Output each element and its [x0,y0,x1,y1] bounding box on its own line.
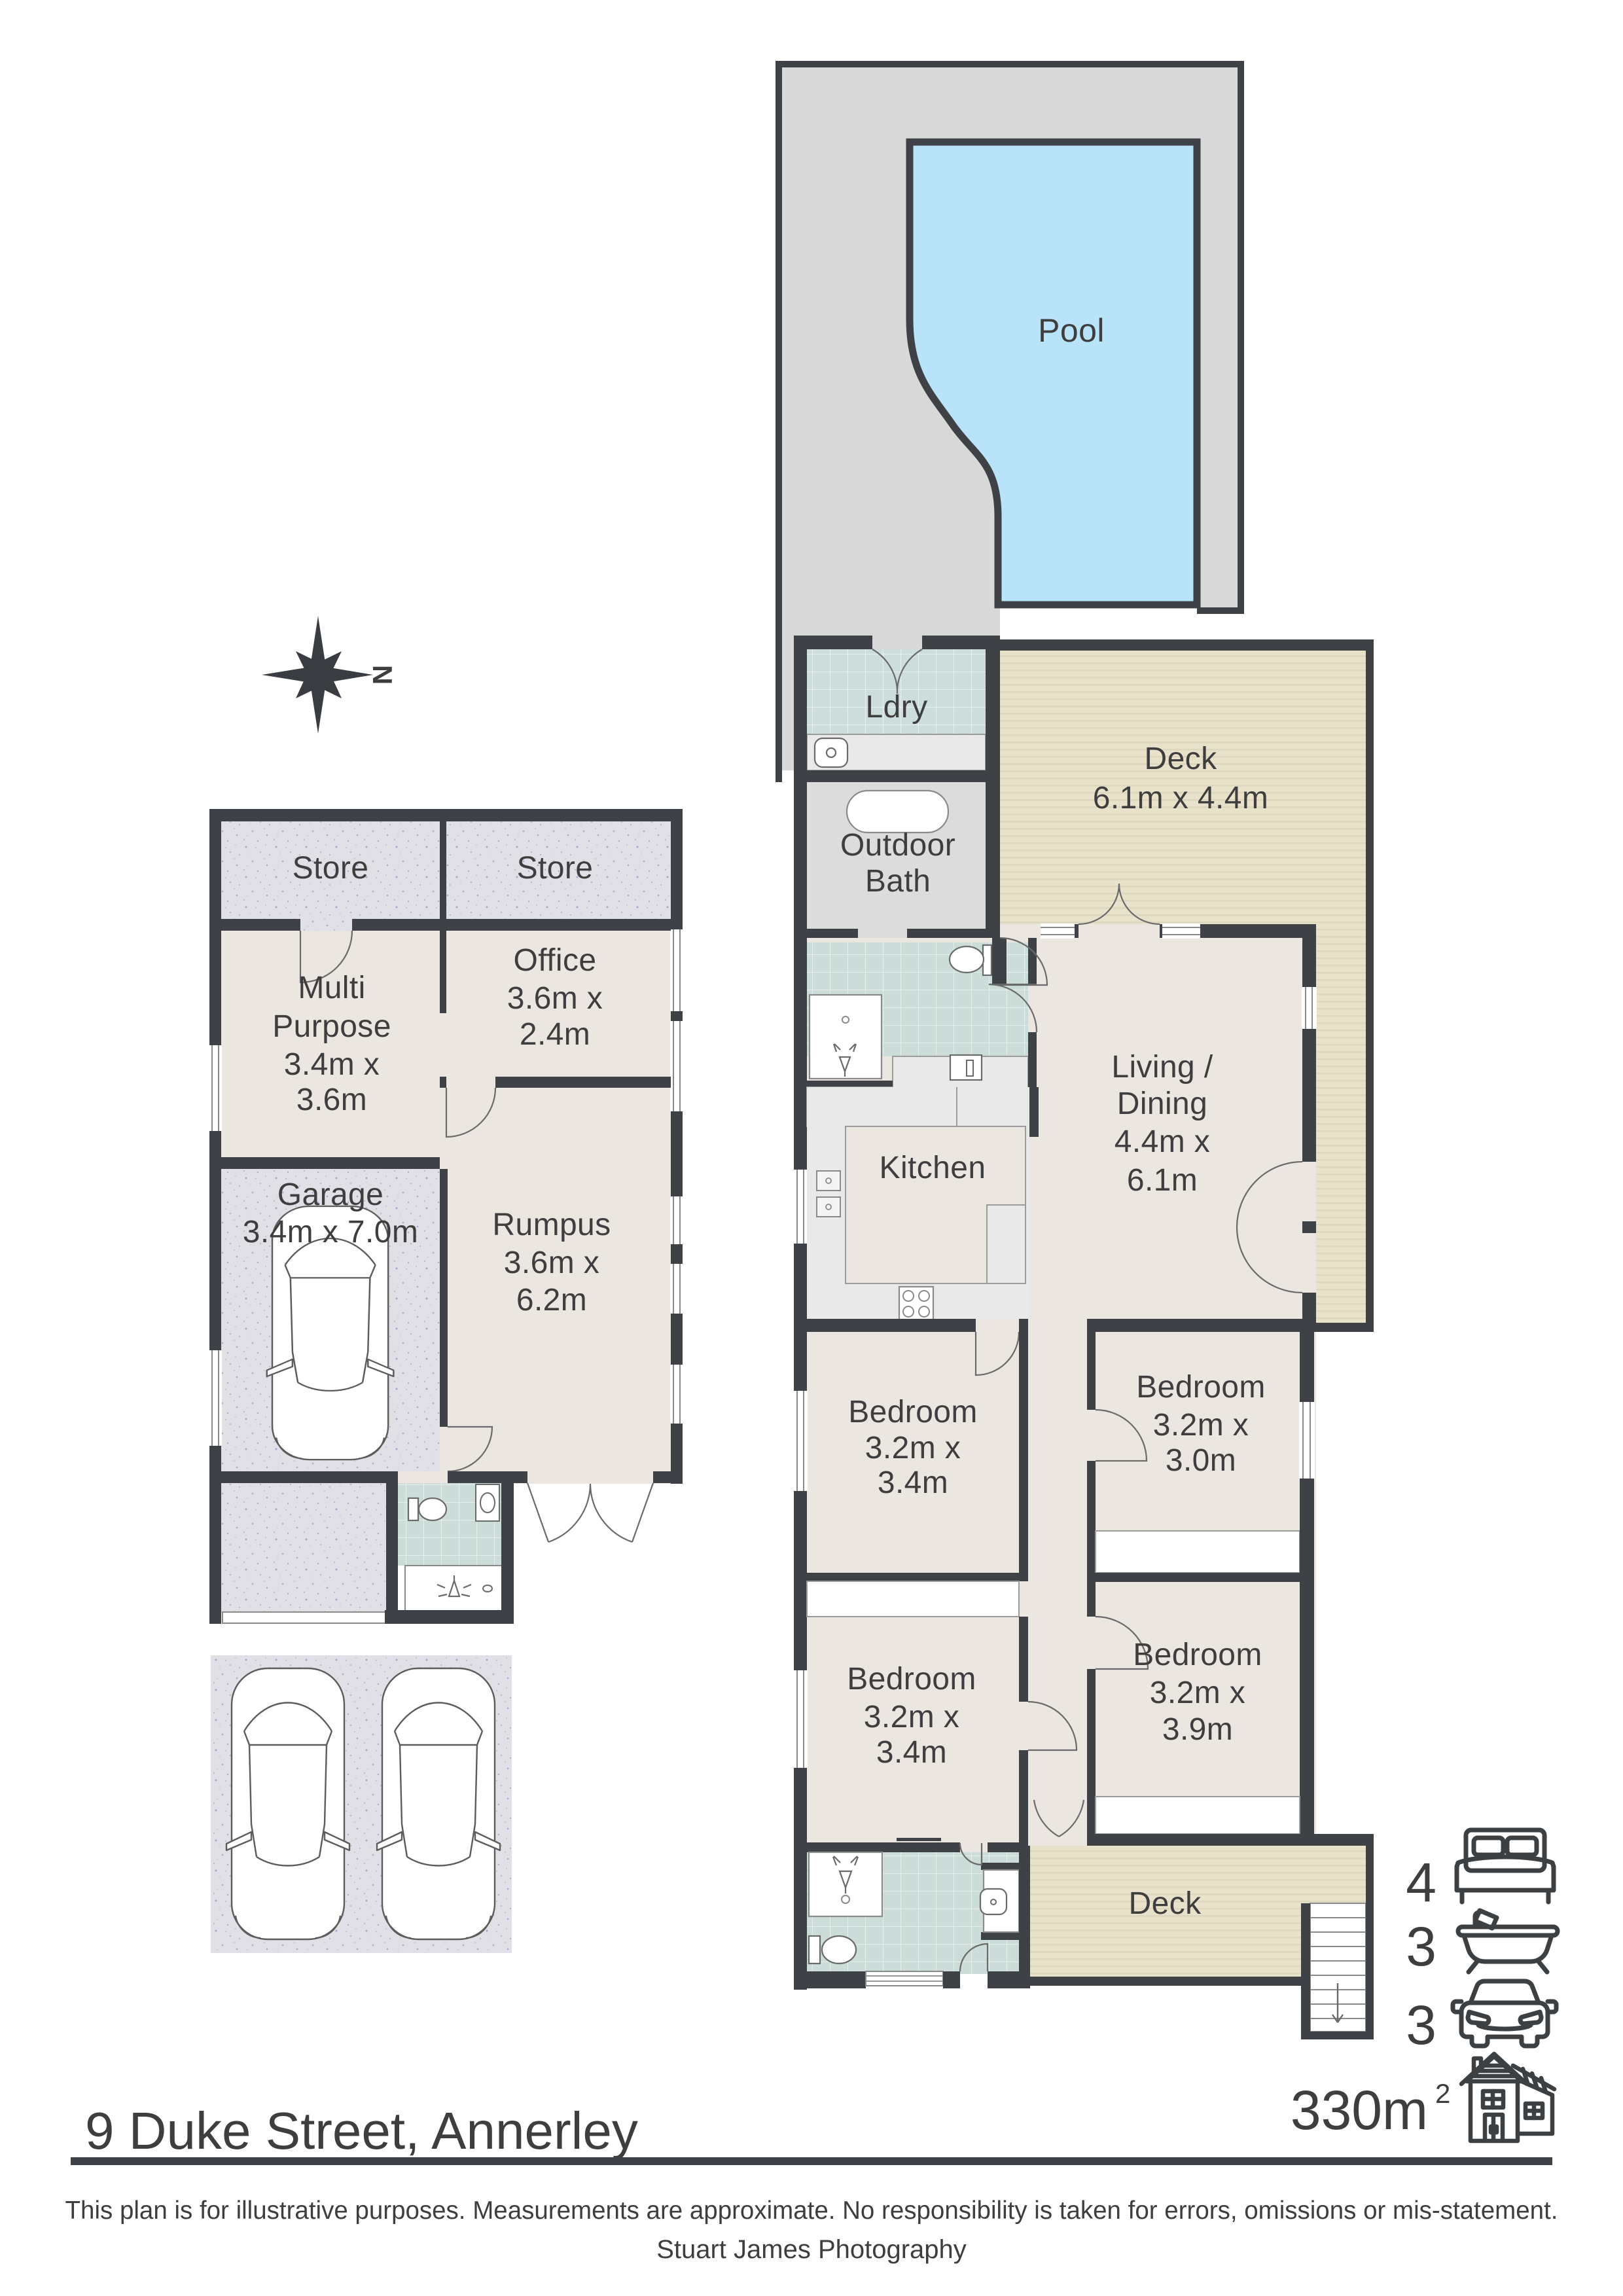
svg-text:6.2m: 6.2m [516,1283,587,1318]
svg-text:3.2m x: 3.2m x [1150,1676,1245,1710]
svg-text:3.6m: 3.6m [296,1083,367,1117]
svg-text:3.9m: 3.9m [1162,1712,1233,1747]
svg-text:Outdoor: Outdoor [840,828,955,863]
svg-text:Bath: Bath [865,864,931,899]
svg-text:Kitchen: Kitchen [880,1151,986,1185]
svg-text:This plan is for illustrative: This plan is for illustrative purposes. … [65,2197,1558,2225]
svg-text:3: 3 [1406,1994,1436,2056]
svg-text:Bedroom: Bedroom [848,1395,978,1429]
svg-text:Deck: Deck [1145,742,1218,776]
svg-text:Purpose: Purpose [272,1009,391,1044]
svg-text:Deck: Deck [1129,1886,1202,1921]
svg-text:9 Duke Street, Annerley: 9 Duke Street, Annerley [85,2102,638,2160]
svg-text:330m: 330m [1291,2079,1428,2141]
svg-text:Living /: Living / [1111,1050,1213,1085]
svg-text:Bedroom: Bedroom [1133,1638,1262,1672]
svg-text:4.4m x: 4.4m x [1115,1124,1210,1159]
svg-text:3.4m x: 3.4m x [284,1047,380,1082]
svg-text:Bedroom: Bedroom [847,1662,976,1696]
svg-text:3.6m x: 3.6m x [504,1246,599,1280]
svg-text:3.2m x: 3.2m x [1153,1408,1249,1443]
svg-text:3.0m: 3.0m [1166,1443,1236,1478]
svg-text:2: 2 [1435,2078,1450,2109]
svg-text:Store: Store [517,851,594,886]
svg-text:4: 4 [1406,1852,1436,1913]
svg-text:3.4m x 7.0m: 3.4m x 7.0m [243,1215,419,1249]
svg-text:N: N [367,665,398,685]
svg-text:Stuart James Photography: Stuart James Photography [656,2235,967,2264]
svg-text:2.4m: 2.4m [520,1017,590,1052]
svg-text:3.2m x: 3.2m x [864,1700,959,1734]
svg-text:Garage: Garage [277,1177,384,1212]
svg-text:3.2m x: 3.2m x [865,1431,961,1465]
svg-text:Multi: Multi [298,971,365,1005]
svg-text:Dining: Dining [1117,1086,1207,1121]
svg-text:3.4m: 3.4m [876,1735,947,1770]
svg-text:Ldry: Ldry [866,690,928,725]
svg-text:6.1m x 4.4m: 6.1m x 4.4m [1093,781,1269,816]
svg-text:3: 3 [1406,1916,1436,1977]
svg-text:3.4m: 3.4m [878,1465,948,1500]
svg-text:Rumpus: Rumpus [492,1208,611,1242]
svg-text:Pool: Pool [1038,312,1105,349]
svg-text:Bedroom: Bedroom [1136,1370,1266,1405]
svg-text:6.1m: 6.1m [1127,1163,1198,1198]
svg-text:3.6m x: 3.6m x [507,981,603,1016]
svg-text:Office: Office [514,943,597,978]
svg-text:Store: Store [293,851,369,886]
